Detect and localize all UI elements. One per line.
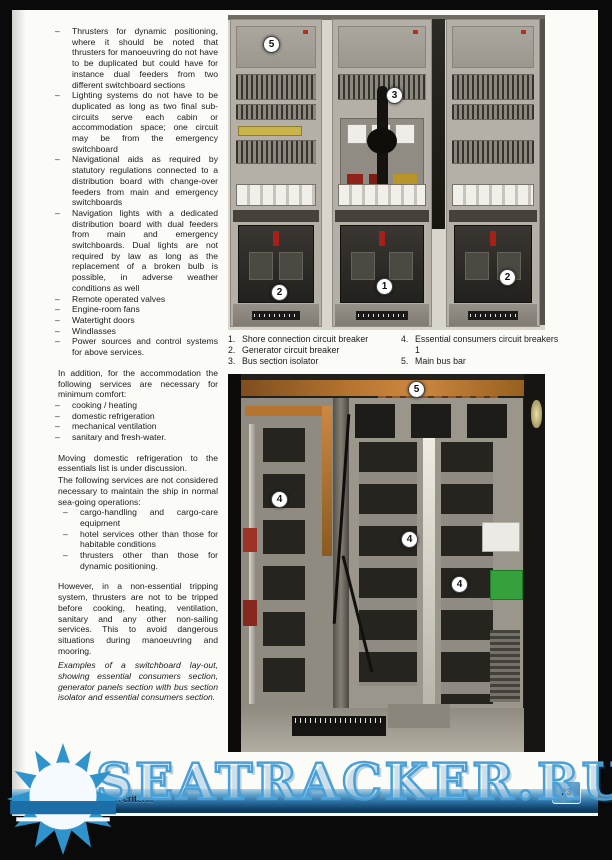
- main-bus-bar: [241, 380, 524, 396]
- vertical-bus-bar: [322, 406, 332, 556]
- bullet-dash: –: [55, 432, 72, 443]
- isolator-hub: [367, 128, 397, 154]
- key-text: Essential consumers circuit breakers 1: [415, 334, 564, 356]
- floor-box: [388, 704, 450, 728]
- bullet-dash: –: [55, 336, 72, 357]
- mounting-rail: [249, 424, 255, 704]
- bullet-text: Navigation lights with a dedicated distr…: [72, 208, 218, 294]
- bullet-text: mechanical ventilation: [72, 421, 218, 432]
- fuse-label: [347, 124, 367, 144]
- bullet-item: –cargo-handling and cargo-care equipment: [55, 507, 218, 528]
- photo-key-column-right: 4.Essential consumers circuit breakers 1…: [401, 334, 564, 367]
- label-row: [338, 184, 426, 206]
- lower-plate: [233, 304, 319, 326]
- bullet-dash: –: [55, 411, 72, 422]
- callout-badge-5: 5: [408, 381, 425, 398]
- photo-key-column-left: 1.Shore connection circuit breaker 2.Gen…: [228, 334, 391, 367]
- bullet-dash: –: [63, 550, 80, 571]
- name-plate: [356, 311, 409, 320]
- bullet-item: –sanitary and fresh-water.: [55, 432, 218, 443]
- indicator-led: [521, 30, 526, 34]
- red-component: [243, 600, 257, 626]
- label-row: [236, 184, 316, 206]
- bullet-dash: –: [55, 326, 72, 337]
- bullet-dash: –: [55, 315, 72, 326]
- cable-duct: [432, 19, 445, 229]
- breaker-window: [249, 252, 273, 280]
- breaker-window: [389, 252, 413, 280]
- breaker-panel-left: [241, 398, 333, 708]
- bullet-item: –domestic refrigeration: [55, 411, 218, 422]
- panel-top-cover: [452, 26, 534, 68]
- bullet-dash: –: [55, 208, 72, 294]
- indicator-led: [303, 30, 308, 34]
- bullet-item: –cooking / heating: [55, 400, 218, 411]
- bullet-dash: –: [55, 90, 72, 154]
- lower-plate: [335, 304, 429, 326]
- bullet-text: cooking / heating: [72, 400, 218, 411]
- panel-divider-band: [449, 210, 537, 222]
- bullet-dash: –: [55, 421, 72, 432]
- figure-caption-italic: Examples of a switchboard lay-out, showi…: [55, 660, 218, 703]
- breaker-window: [465, 252, 489, 280]
- callout-badge-2: 2: [499, 269, 516, 286]
- indicator-led: [413, 30, 418, 34]
- bullet-text: Engine-room fans: [72, 304, 218, 315]
- bullet-dash: –: [63, 529, 80, 550]
- terminal-strip: [236, 104, 316, 120]
- key-text: Bus section isolator: [242, 356, 391, 367]
- bullet-text: Thrusters for dynamic positioning, where…: [72, 26, 218, 90]
- scanned-book-page-background: { "dash": "–", "left_column": { "bullets…: [0, 0, 612, 826]
- key-item: 2.Generator circuit breaker: [228, 345, 391, 356]
- green-terminal-block: [490, 570, 523, 600]
- cabinet-right-edge: [524, 374, 545, 752]
- key-number: 3.: [228, 356, 242, 367]
- key-item: 3.Bus section isolator: [228, 356, 391, 367]
- bullet-item: –Navigation lights with a dedicated dist…: [55, 208, 218, 294]
- bullet-text: thrusters other than those for dynamic p…: [80, 550, 218, 571]
- cabinet-left-edge: [228, 374, 241, 752]
- breaker-window: [279, 252, 303, 280]
- callout-badge-4: 4: [451, 576, 468, 593]
- bullet-item: –Navigational aids as required by statut…: [55, 154, 218, 208]
- label-row: [452, 184, 534, 206]
- bullet-text: Navigational aids as required by statuto…: [72, 154, 218, 208]
- callout-badge-2: 2: [271, 284, 288, 301]
- breaker-trip-button: [273, 231, 279, 246]
- breaker-column: [263, 428, 305, 702]
- terminal-strip: [236, 140, 316, 164]
- bullet-item: –Thrusters for dynamic positioning, wher…: [55, 26, 218, 90]
- air-circuit-breaker: [454, 225, 532, 303]
- bullet-item: –Lighting systems do not have to be dupl…: [55, 90, 218, 154]
- cabinet-side-edge: [540, 19, 545, 325]
- bullet-text: sanitary and fresh-water.: [72, 432, 218, 443]
- terminal-strip: [236, 74, 316, 100]
- panel-top-cover: [338, 26, 426, 68]
- breaker-column: [441, 442, 493, 704]
- paragraph-however: However, in a non-essential tripping sys…: [55, 581, 218, 656]
- breaker-row-top: [355, 404, 517, 438]
- copper-link: [245, 406, 329, 416]
- name-plate: [252, 311, 300, 320]
- bullet-dash: –: [55, 400, 72, 411]
- page: –Thrusters for dynamic positioning, wher…: [12, 10, 598, 816]
- fuse-label: [395, 124, 415, 144]
- callout-badge-1: 1: [376, 278, 393, 295]
- key-item: 5.Main bus bar: [401, 356, 564, 367]
- bullet-dash: –: [55, 26, 72, 90]
- red-component: [243, 528, 257, 552]
- bullet-text: Watertight doors: [72, 315, 218, 326]
- bullet-text: hotel services other than those for habi…: [80, 529, 218, 550]
- panel-divider-band: [233, 210, 319, 222]
- callout-badge-4: 4: [401, 531, 418, 548]
- name-plate: [468, 311, 517, 320]
- bullet-item: –Power sources and control systems for a…: [55, 336, 218, 357]
- body-text-column: –Thrusters for dynamic positioning, wher…: [55, 26, 218, 703]
- bullet-item: –Windlasses: [55, 326, 218, 337]
- key-item: 1.Shore connection circuit breaker: [228, 334, 391, 345]
- bullet-item: –Watertight doors: [55, 315, 218, 326]
- bullet-text: Power sources and control systems for ab…: [72, 336, 218, 357]
- bullet-text: cargo-handling and cargo-care equipment: [80, 507, 218, 528]
- white-junction-box: [482, 522, 520, 552]
- bullet-text: Remote operated valves: [72, 294, 218, 305]
- key-number: 1.: [228, 334, 242, 345]
- terminal-strip: [452, 140, 534, 164]
- panel-divider-band: [335, 210, 429, 222]
- terminal-strip: [452, 74, 534, 100]
- paragraph-moving: Moving domestic refrigeration to the ess…: [55, 453, 218, 474]
- bullet-item: –thrusters other than those for dynamic …: [55, 550, 218, 571]
- photo-main-switchboard: 5 3 2 1 2: [228, 15, 545, 330]
- photo-consumers-switchboard: 5 4 4 4: [228, 374, 545, 752]
- breaker-trip-button: [379, 231, 385, 246]
- key-text: Generator circuit breaker: [242, 345, 391, 356]
- breaker-window: [351, 252, 375, 280]
- breaker-panel-right: [349, 398, 523, 708]
- callout-badge-3: 3: [386, 87, 403, 104]
- terminal-strip: [452, 104, 534, 120]
- sun-logo-icon: [2, 738, 124, 860]
- vented-duct: [490, 630, 520, 702]
- key-number: 4.: [401, 334, 415, 356]
- lamp-glow: [531, 400, 542, 428]
- bullet-text: domestic refrigeration: [72, 411, 218, 422]
- lower-plate: [449, 304, 537, 326]
- bullet-item: –Remote operated valves: [55, 294, 218, 305]
- bullet-dash: –: [63, 507, 80, 528]
- bullet-dash: –: [55, 154, 72, 208]
- paragraph-accommodation: In addition, for the accommodation the f…: [55, 368, 218, 400]
- watermark-text: SEATRACKER.RU: [96, 752, 612, 811]
- callout-badge-4: 4: [271, 491, 288, 508]
- center-rail: [423, 438, 435, 704]
- switchboard-panel-left: [230, 19, 322, 327]
- key-number: 2.: [228, 345, 242, 356]
- key-text: Main bus bar: [415, 356, 564, 367]
- din-rail: [238, 126, 302, 136]
- key-number: 5.: [401, 356, 415, 367]
- measuring-ruler: [292, 716, 386, 736]
- bullet-dash: –: [55, 304, 72, 315]
- bullet-text: Windlasses: [72, 326, 218, 337]
- switchboard-panel-right: [446, 19, 540, 327]
- bullet-dash: –: [55, 294, 72, 305]
- bullet-item: –Engine-room fans: [55, 304, 218, 315]
- breaker-trip-button: [490, 231, 496, 246]
- key-text: Shore connection circuit breaker: [242, 334, 391, 345]
- photo-key-list: 1.Shore connection circuit breaker 2.Gen…: [228, 334, 564, 367]
- bullet-item: –mechanical ventilation: [55, 421, 218, 432]
- paragraph-following: The following services are not considere…: [55, 475, 218, 507]
- key-item: 4.Essential consumers circuit breakers 1: [401, 334, 564, 356]
- bullet-text: Lighting systems do not have to be dupli…: [72, 90, 218, 154]
- bullet-item: –hotel services other than those for hab…: [55, 529, 218, 550]
- callout-badge-5: 5: [263, 36, 280, 53]
